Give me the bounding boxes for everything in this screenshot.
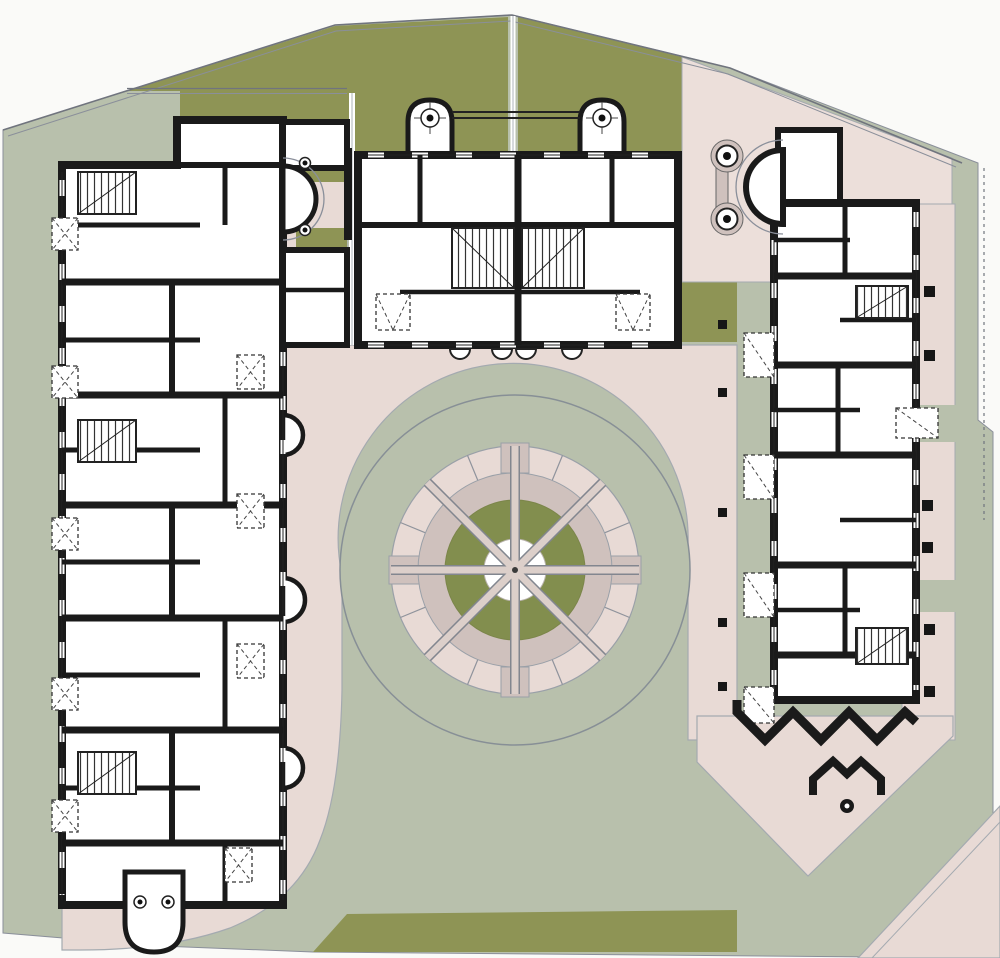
- lawn-patch-east: [680, 282, 737, 342]
- terrace-balcony: [896, 408, 938, 438]
- west-wing-annex-north: [283, 122, 347, 168]
- east-wing-annex-north: [778, 130, 840, 205]
- garden-wall: [344, 148, 352, 240]
- floor-plan-svg: [0, 0, 1000, 958]
- bay-window-2: [283, 578, 305, 622]
- lawn-south-trapezoid: [313, 910, 737, 952]
- floor-plan-page: [0, 0, 1000, 958]
- west-wing-annex-east: [283, 250, 347, 345]
- south-porch: [125, 872, 183, 952]
- fountain-garden: [340, 395, 690, 745]
- chevron-column: [840, 799, 854, 813]
- fountain-center-marker: [512, 567, 518, 573]
- bay-window-3: [283, 748, 303, 788]
- bay-window-1: [283, 415, 303, 455]
